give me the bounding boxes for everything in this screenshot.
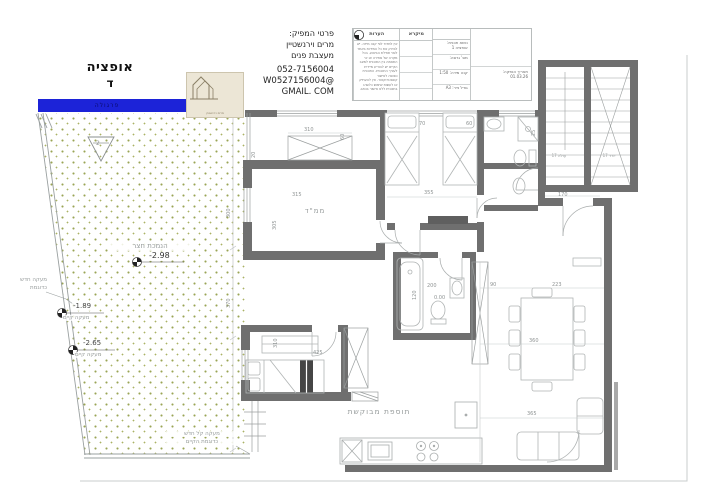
stairs-down-label: יורד 17 [592,154,626,158]
producer-name: מרים וירנשטיין [234,39,334,50]
legend-header: מיקרא [400,29,432,41]
info-row-subject: נושא תכנית: אופציה 1 [433,40,470,55]
dim-20: 20 [251,152,257,158]
sofa [517,398,603,462]
legend-row [400,57,432,73]
dim-223: 223 [552,282,562,288]
section-mark-icon [88,137,114,161]
single-bed [385,113,419,185]
dim-70: 70 [419,121,425,127]
floor-plan-sheet: אופציה ד מרים וירנשטיין פרטי המפיק: מרים… [0,0,708,500]
railing-new-label-line1: מעקה חדש [2,277,48,283]
dim-310a: 310 [304,127,314,133]
dim-60b: 60 [466,121,472,127]
option-title: אופציה [70,60,150,75]
dim-200: 200 [427,283,437,289]
yard-label: הנמכת חצר [110,243,190,251]
dim-370: 370 [226,298,232,308]
dim-170: 170 [558,192,568,198]
level-2-value: -2.65 [82,340,102,348]
issue-date-cell: תאריך הנפקה: 01.03.26 [471,67,531,100]
house-logo-icon [187,73,221,101]
railing-light-label-line1: מעקה קל חדש [166,431,238,437]
section-mark-number: 2 [96,141,100,147]
producer-email-1: W0527156004@ [234,76,334,87]
addition-label: תוספת מבוקשת [342,408,416,416]
railing-light-label-line2: כדוגמת הקיים [166,439,238,445]
level-symbol-icon [353,29,365,41]
title-block-table: הערות אין למדוד לפי קנה מידה. יש לבדוק א… [352,28,532,101]
dim-310b: 310 [273,338,279,348]
legend-row [400,73,432,89]
dim-365: 365 [527,411,537,417]
date-column: תאריך הנפקה: 01.03.26 [470,29,531,100]
info-row-version: מס' גרסה: [433,55,470,70]
producer-email-2: GMAIL. COM [234,87,334,98]
legend-column: מיקרא [399,29,432,100]
zero-level-label: 0.00 [434,295,445,301]
info-column: נושא תכנית: אופציה 1 מס' גרסה: קנה מידה:… [432,29,470,100]
general-notes-text: אין למדוד לפי קנה מידה. יש לבדוק את כל ה… [354,41,399,93]
dim-355: 355 [424,190,434,196]
stairs-up-label: עולה 17 [542,154,576,158]
bathroom-mid-fixtures [397,258,464,330]
dim-60a: 60 [340,134,346,140]
garden-boundary [36,113,250,458]
option-title-block: אופציה ד [70,60,150,90]
level-1-value: -1.89 [72,303,92,311]
room-label-mamad: ממ"ד [296,208,334,216]
logo-caption: מרים וירנשטיין [206,111,224,115]
legend-row [400,89,432,104]
bedroom-closet [262,336,318,353]
dim-120: 120 [412,290,418,300]
info-row-scale: קנה מידה: 1:50 [433,70,470,85]
empty-cell [471,29,531,67]
kitchen-island [455,402,477,428]
issue-date-value: 01.03.26 [510,74,528,79]
railing-new-label-line2: כדוגמת [2,285,48,291]
dim-300: 300 [226,208,232,218]
bathroom-top-fixtures [484,117,538,194]
yard-level-value: -2.98 [148,252,171,261]
kitchen-counter [340,438,482,464]
info-row-paper: גודל נייר: A3 [433,85,470,100]
dim-360: 360 [529,338,539,344]
dim-425: 425 [313,350,323,356]
producer-details: פרטי המפיק: מרים וירנשטיין מעצבת פנים 05… [234,28,334,98]
producer-title: פרטי המפיק: [234,28,334,39]
legend-row [400,41,432,57]
dim-25: 25 [531,130,537,136]
railing-existing-label-1: מעקה קיים [62,315,90,321]
producer-phone: 052-7156004 [234,65,334,76]
dim-90: 90 [490,282,496,288]
option-letter: ד [70,76,150,90]
dim-305: 305 [272,220,278,230]
producer-role: מעצבת פנים [234,50,334,61]
railing-existing-label-2: מעקה קיים [74,352,102,358]
dresser [428,216,468,224]
dim-315: 315 [292,192,302,198]
dining-table [509,288,585,391]
entrance-step [573,258,601,266]
garden-dimension-chain [230,111,236,452]
